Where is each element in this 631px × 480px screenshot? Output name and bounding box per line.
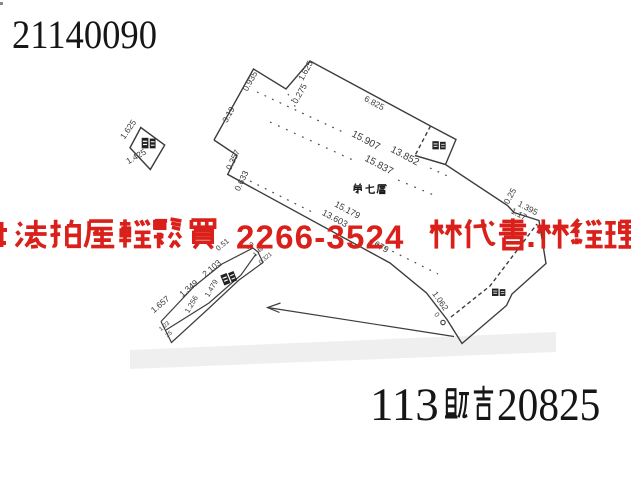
svg-text:20825: 20825 bbox=[497, 379, 600, 431]
svg-text:21140090: 21140090 bbox=[12, 14, 157, 58]
svg-text:113: 113 bbox=[370, 379, 439, 431]
svg-text:2266-3524: 2266-3524 bbox=[236, 219, 405, 256]
